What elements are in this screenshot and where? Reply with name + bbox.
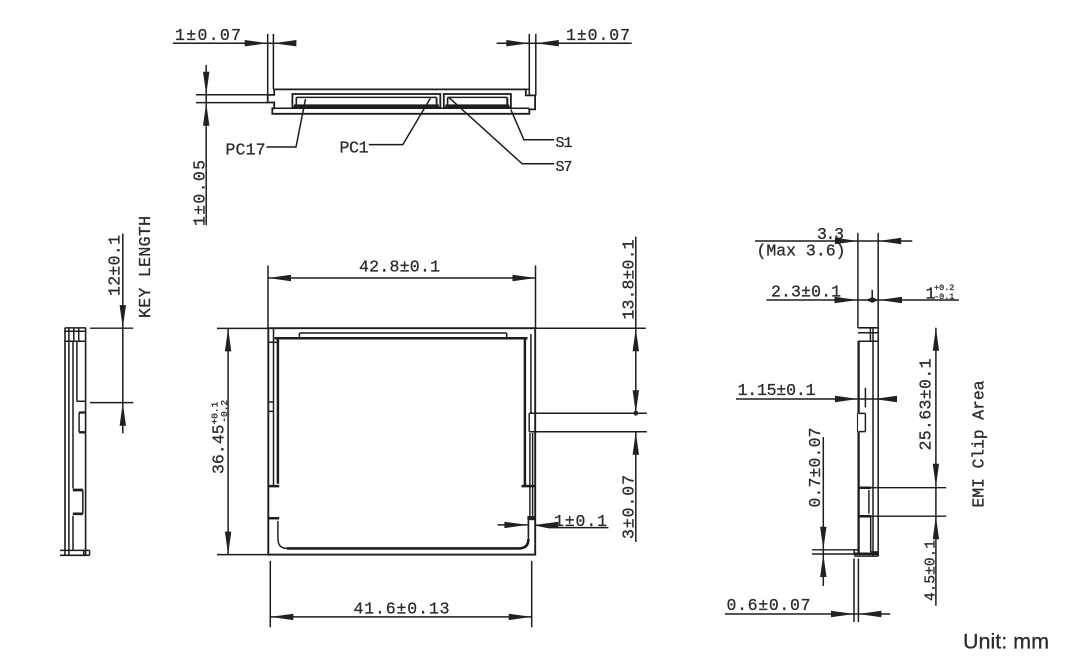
svg-text:1±0.1: 1±0.1 [554, 512, 607, 531]
svg-text:3±0.07: 3±0.07 [620, 475, 639, 539]
svg-text:EMI Clip Area: EMI Clip Area [970, 380, 989, 507]
svg-text:13.8±0.1: 13.8±0.1 [620, 239, 639, 319]
svg-text:25.63±0.1: 25.63±0.1 [917, 358, 936, 450]
svg-text:PC1: PC1 [340, 139, 369, 158]
svg-text:S7: S7 [556, 159, 573, 176]
svg-text:36.45+0.1-0.2: 36.45+0.1-0.2 [210, 400, 231, 474]
svg-text:1±0.07: 1±0.07 [175, 26, 241, 45]
svg-text:2.3±0.1: 2.3±0.1 [771, 283, 841, 302]
svg-text:PC17: PC17 [226, 141, 266, 160]
svg-text:42.8±0.1: 42.8±0.1 [359, 258, 440, 277]
svg-text:-0.1: -0.1 [934, 292, 954, 302]
svg-text:41.6±0.13: 41.6±0.13 [354, 600, 450, 619]
svg-text:0.6±0.07: 0.6±0.07 [727, 596, 811, 615]
svg-text:1±0.07: 1±0.07 [566, 26, 630, 45]
svg-text:12±0.1: 12±0.1 [106, 235, 125, 296]
svg-text:KEY LENGTH: KEY LENGTH [136, 216, 155, 318]
svg-text:0.7±0.07: 0.7±0.07 [806, 428, 825, 508]
svg-text:1±0.05: 1±0.05 [191, 160, 210, 226]
svg-text:4.5±0.1: 4.5±0.1 [924, 540, 940, 601]
svg-text:S1: S1 [556, 135, 573, 152]
svg-text:(Max 3.6): (Max 3.6) [757, 242, 846, 261]
svg-text:Unit: mm: Unit: mm [963, 630, 1049, 654]
svg-text:1.15±0.1: 1.15±0.1 [738, 381, 816, 400]
